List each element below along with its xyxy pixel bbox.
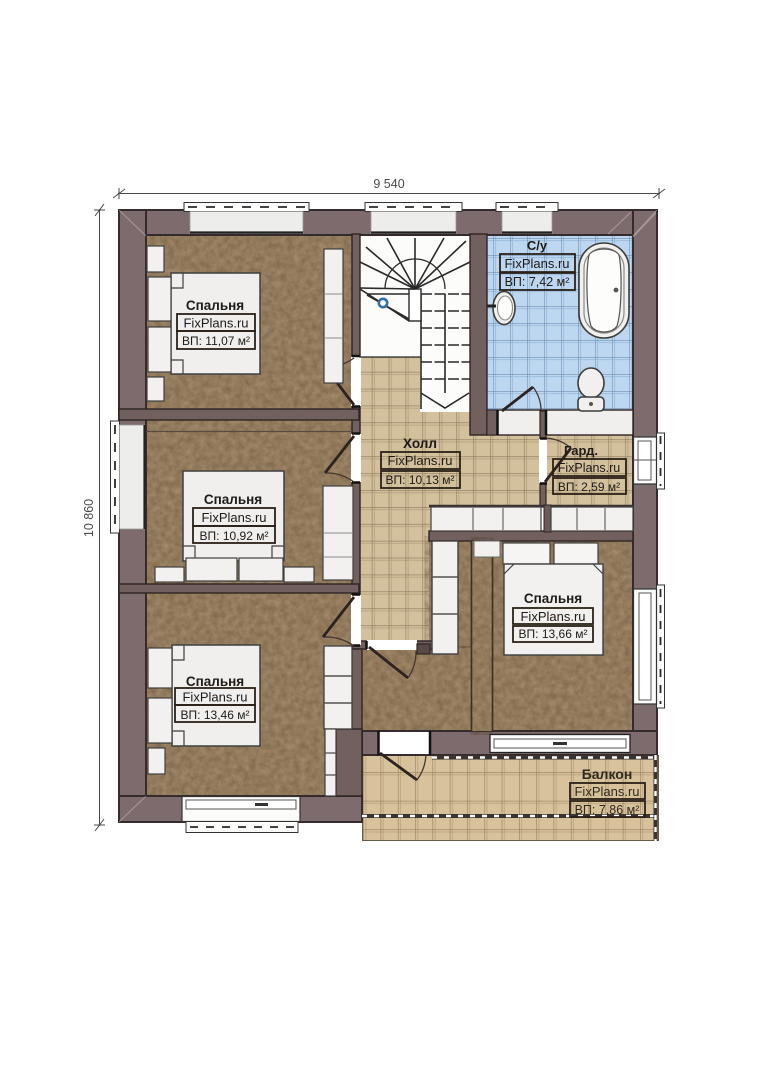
svg-text:ВП: 2,59 м²: ВП: 2,59 м²	[558, 480, 620, 494]
svg-text:FixPlans.ru: FixPlans.ru	[574, 784, 639, 799]
svg-text:Гард.: Гард.	[564, 443, 598, 458]
svg-text:FixPlans.ru: FixPlans.ru	[504, 256, 569, 271]
svg-text:ВП: 13,66 м²: ВП: 13,66 м²	[519, 627, 588, 641]
svg-text:Спальня: Спальня	[186, 674, 244, 689]
svg-text:ВП: 13,46 м²: ВП: 13,46 м²	[181, 708, 250, 722]
svg-text:Холл: Холл	[403, 436, 437, 451]
svg-text:Спальня: Спальня	[204, 492, 262, 507]
svg-text:10 860: 10 860	[82, 499, 96, 537]
svg-text:FixPlans.ru: FixPlans.ru	[387, 453, 452, 468]
svg-text:Спальня: Спальня	[524, 591, 582, 606]
svg-text:9 540: 9 540	[373, 177, 404, 191]
svg-text:ВП: 10,13 м²: ВП: 10,13 м²	[386, 473, 455, 487]
svg-text:FixPlans.ru: FixPlans.ru	[201, 510, 266, 525]
svg-text:ВП: 11,07 м²: ВП: 11,07 м²	[182, 334, 250, 348]
svg-text:С/у: С/у	[527, 238, 548, 253]
svg-text:FixPlans.ru: FixPlans.ru	[182, 690, 247, 705]
svg-text:ВП: 10,92 м²: ВП: 10,92 м²	[200, 529, 269, 543]
svg-text:Спальня: Спальня	[186, 298, 244, 313]
svg-text:ВП: 7,42 м²: ВП: 7,42 м²	[505, 275, 570, 289]
svg-text:ВП: 7,86 м²: ВП: 7,86 м²	[575, 803, 640, 817]
svg-text:FixPlans.ru: FixPlans.ru	[520, 609, 585, 624]
svg-text:Балкон: Балкон	[582, 766, 633, 782]
svg-text:FixPlans.ru: FixPlans.ru	[183, 316, 248, 331]
svg-text:FixPlans.ru: FixPlans.ru	[558, 461, 621, 475]
